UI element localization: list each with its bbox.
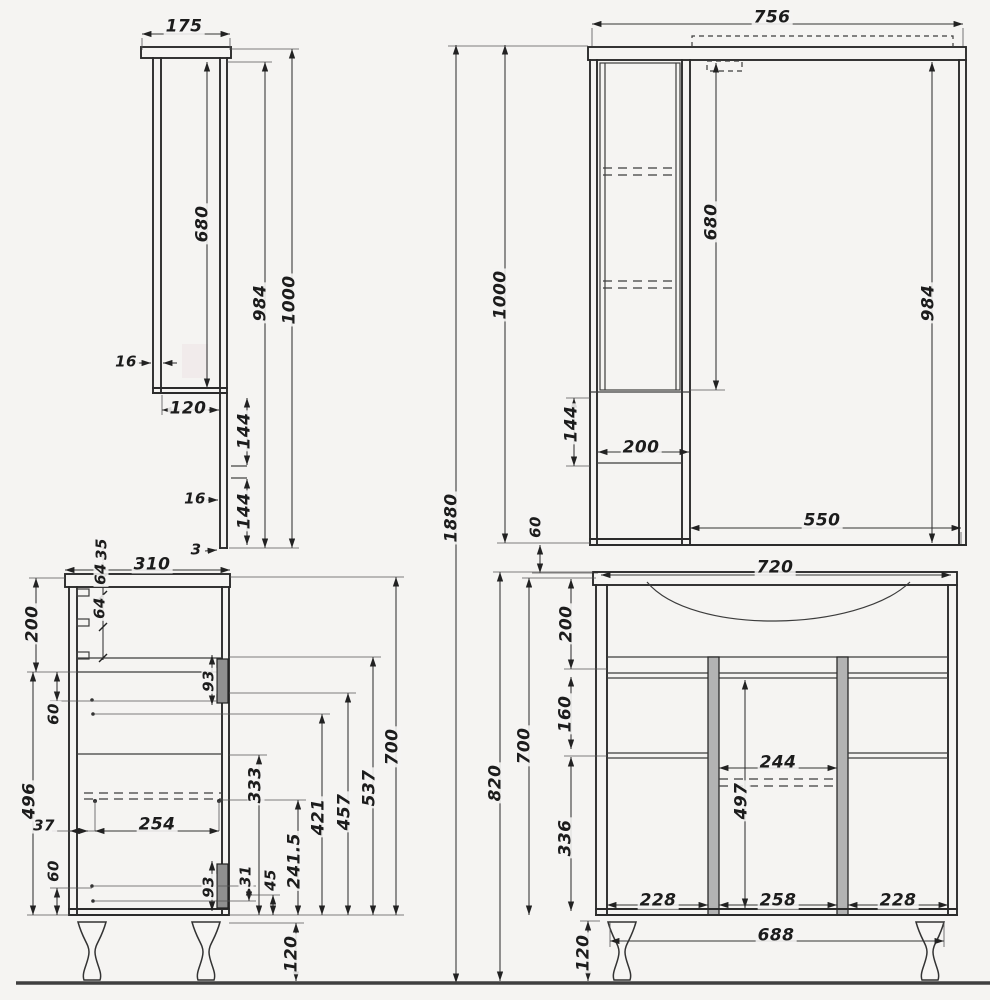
dim-vanity-side-offset37: 37 [31, 819, 57, 834]
dim-mirror-side-panel-height: 984 [253, 283, 270, 324]
dim-vanity-side-leg-height: 120 [284, 934, 301, 975]
center-stile-left [708, 657, 719, 915]
dim-vanity-front-door-section: 336 [558, 818, 575, 859]
mirror-glass-highlight [182, 344, 208, 378]
overall-dimension-lines [448, 45, 598, 983]
dim-vanity-front-door-left: 228 [638, 893, 679, 910]
dim-vanity-front-top-width: 720 [755, 560, 796, 577]
dim-vanity-side-lower-height: 496 [22, 781, 39, 822]
dim-vanity-side-gap60-top: 60 [47, 701, 62, 727]
dim-vanity-side-sink-section: 200 [25, 604, 42, 645]
dim-vanity-front-body-height: 700 [517, 726, 534, 767]
dim-vanity-front-leg-height: 120 [576, 933, 593, 974]
dim-vanity-front-opening-width: 244 [758, 755, 799, 772]
dim-vanity-front-total-height: 820 [488, 763, 505, 804]
dim-vanity-side-hinge-gap1: 64 [94, 561, 109, 587]
dim-vanity-front-drawer-section: 160 [558, 694, 575, 735]
dim-mirror-front-cabinet-width: 200 [621, 440, 662, 457]
dim-overall-upper-height: 1000 [493, 269, 510, 322]
dim-mirror-side-gap-lower: 144 [237, 491, 254, 532]
dim-mirror-side-body-height: 680 [195, 204, 212, 245]
vanity-side-view [27, 546, 404, 981]
dim-vanity-front-bottom-width: 688 [756, 928, 797, 945]
mirror-cabinet-side-view [137, 34, 299, 551]
hinge-mark [77, 619, 89, 626]
dim-vanity-side-h333: 333 [248, 765, 265, 806]
dim-vanity-side-depth: 310 [132, 557, 173, 574]
dim-vanity-front-sink-section: 200 [559, 604, 576, 645]
dim-mirror-side-bottom-gap: 3 [189, 543, 204, 558]
sink-basin-curve [647, 582, 910, 621]
dim-vanity-side-hinge-offset: 35 [95, 536, 110, 562]
hinge-mark [77, 589, 89, 596]
dim-vanity-side-handle-top: 93 [202, 668, 217, 694]
dim-mirror-front-panel-height: 984 [921, 283, 938, 324]
lamp-dashed-outline [707, 61, 742, 71]
dim-mirror-side-top-depth: 175 [164, 19, 205, 36]
dim-mirror-front-niche-height: 144 [564, 404, 581, 445]
dim-mirror-side-gap-upper: 144 [237, 411, 254, 452]
dim-vanity-front-drawer-width: 258 [758, 893, 799, 910]
dim-overall-gap: 60 [529, 514, 544, 540]
dim-vanity-side-h421: 421 [311, 797, 328, 838]
mirror-cabinet-door[interactable] [600, 63, 680, 390]
drawing-linework [0, 0, 990, 1000]
center-stile-right [837, 657, 848, 915]
dim-vanity-side-h537: 537 [362, 768, 379, 809]
dim-overall-total-height: 1880 [444, 492, 461, 545]
dim-mirror-side-panel-thickness: 16 [182, 492, 208, 507]
dim-mirror-front-door-height: 680 [704, 202, 721, 243]
dim-vanity-front-inner-height: 497 [734, 781, 751, 822]
dim-vanity-side-gap60-bottom: 60 [47, 858, 62, 884]
dim-mirror-front-mirror-width: 550 [802, 513, 843, 530]
dim-mirror-side-total-height: 1000 [282, 274, 299, 327]
dim-vanity-side-drawer-depth: 254 [137, 817, 178, 834]
cabinet-leg [192, 922, 220, 980]
dim-mirror-front-total-width: 756 [752, 10, 793, 27]
technical-drawing-canvas: 175 680 984 1000 16 120 144 16 144 3 756… [0, 0, 990, 1000]
dim-mirror-side-wall-thickness: 16 [113, 355, 139, 370]
backboard-dashed-outline [692, 36, 953, 47]
dim-vanity-side-off45: 45 [264, 867, 279, 893]
cabinet-leg [78, 922, 106, 980]
dim-mirror-side-inner-depth: 120 [168, 401, 209, 418]
mirror-cabinet-front-view [566, 24, 966, 545]
dim-vanity-front-door-right: 228 [878, 893, 919, 910]
dim-vanity-side-hinge-gap2: 64 [93, 595, 108, 621]
dim-vanity-side-handle-bottom: 93 [202, 874, 217, 900]
dim-vanity-side-h457: 457 [337, 792, 354, 833]
dim-vanity-side-body-height: 700 [385, 727, 402, 768]
dim-vanity-side-off31: 31 [239, 863, 254, 889]
dim-vanity-side-h241: 241.5 [287, 831, 304, 891]
drawer-slide-upper [217, 659, 228, 703]
cabinet-leg [916, 922, 944, 980]
cabinet-leg [608, 922, 636, 980]
